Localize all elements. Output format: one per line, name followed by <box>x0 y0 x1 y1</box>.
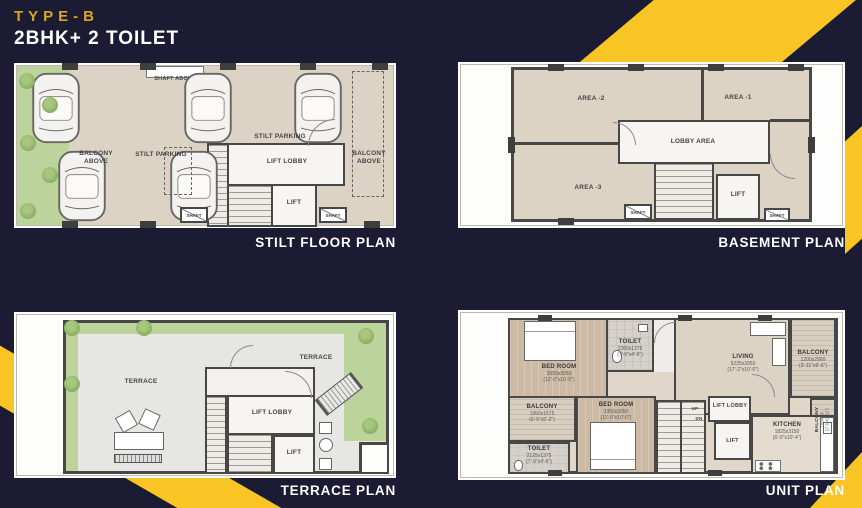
area-3-label: AREA -3 <box>550 184 626 192</box>
lift-lobby-label: LIFT LOBBY <box>232 409 312 417</box>
planter-top <box>66 323 352 334</box>
staircase <box>227 433 273 474</box>
bedroom-2-label: BED ROOM 3350x3050 (11'-0"x10'-0") <box>580 402 652 421</box>
column <box>372 63 388 70</box>
stool <box>319 422 332 434</box>
column <box>758 315 772 321</box>
lift-label: LIFT <box>714 438 751 445</box>
balcony-right-label: BALCONY 1200x2900 (3'-11"x9'-6") <box>792 350 834 369</box>
wall <box>513 142 621 145</box>
column <box>140 63 156 70</box>
lift-lobby-label: LIFT LOBBY <box>702 403 758 410</box>
terrace-notch <box>359 442 387 472</box>
stove <box>755 460 781 472</box>
column <box>62 221 78 228</box>
car-top-view-icon <box>180 71 236 145</box>
stool <box>319 458 332 470</box>
basement-plan-panel: SHAFT SHAFT AREA -2 AREA -1 AREA -3 LOBB… <box>458 62 845 228</box>
lift-label: LIFT <box>716 191 760 199</box>
staircase <box>227 184 273 227</box>
tree-icon <box>362 418 378 434</box>
staircase <box>656 400 682 474</box>
column <box>538 315 552 321</box>
table <box>114 432 164 450</box>
planter-left <box>66 323 78 471</box>
column <box>558 218 574 225</box>
column <box>220 63 236 70</box>
column <box>364 221 380 228</box>
wall <box>770 119 812 122</box>
column <box>808 137 815 153</box>
balcony-above-outline <box>352 71 384 197</box>
header: TYPE-B 2BHK+ 2 TOILET <box>14 8 179 50</box>
brochure-canvas: TYPE-B 2BHK+ 2 TOILET SHAFT ABOVE <box>0 0 862 508</box>
shaft-label: SHAFT <box>326 213 341 218</box>
shaft-box: SHAFT <box>624 204 652 220</box>
shaft-box: SHAFT <box>764 208 790 222</box>
shaft-box: SHAFT <box>319 207 347 223</box>
column <box>678 315 692 321</box>
column <box>628 64 644 71</box>
up-label: UP <box>688 406 702 412</box>
sofa <box>750 322 786 336</box>
basement-caption: BASEMENT PLAN <box>458 235 845 250</box>
lift-label: LIFT <box>273 449 315 457</box>
bed <box>590 422 636 470</box>
column <box>548 470 562 476</box>
shaft-label: SHAFT <box>631 210 646 215</box>
stilt-caption: STILT FLOOR PLAN <box>14 235 396 250</box>
type-label: TYPE-B <box>14 8 179 25</box>
tree-icon <box>20 135 36 151</box>
tree-icon <box>64 376 80 392</box>
shaft-label: SHAFT <box>187 213 202 218</box>
lobby-area-label: LOBBY AREA <box>658 138 728 146</box>
tree-icon <box>42 97 58 113</box>
stilt-parking-label: STILT PARKING <box>242 133 318 141</box>
column <box>140 221 156 228</box>
washbasin <box>638 324 648 332</box>
unit-plan-panel: BALCONY 750x900 (2'-6"x2'-11") BED ROOM … <box>458 310 845 480</box>
balcony-above-label: BALCONY ABOVE <box>348 150 390 166</box>
living-label: LIVING 5235x3050 (17'-2"x10'-0") <box>706 354 780 373</box>
kitchen-label: KITCHEN 1825x3150 (6'-0"x10'-4") <box>756 422 818 441</box>
column <box>300 63 316 70</box>
terrace-plan-panel: TERRACE TERRACE LIFT LOBBY LIFT <box>14 312 396 478</box>
tree-icon <box>64 320 80 336</box>
terrace-caption: TERRACE PLAN <box>14 483 396 498</box>
tree-icon <box>20 203 36 219</box>
unit-caption: UNIT PLAN <box>458 483 845 498</box>
round-table <box>319 438 333 452</box>
area-2-label: AREA -2 <box>553 95 629 103</box>
toilet-2-label: TOILET 2125x1375 (7'-0"x4'-6") <box>508 446 570 465</box>
terrace-label: TERRACE <box>284 354 348 362</box>
tree-icon <box>19 73 35 89</box>
tree-icon <box>358 328 374 344</box>
shaft-box: SHAFT <box>180 207 208 223</box>
column <box>708 64 724 71</box>
column <box>508 137 515 153</box>
bedroom-1-label: BED ROOM 3650x3050 (12'-0"x10'-0") <box>522 364 596 383</box>
tree-icon <box>42 167 58 183</box>
yellow-stripe-right-edge <box>845 126 862 254</box>
column <box>788 64 804 71</box>
column <box>62 63 78 70</box>
staircase <box>205 395 227 474</box>
lift-lobby-label: LIFT LOBBY <box>247 158 327 166</box>
deck-mat <box>114 454 162 463</box>
stilt-floor-plan-panel: SHAFT ABOVE SHAFT SHAFT STILT PARKING ST… <box>14 63 396 228</box>
area-1-label: AREA -1 <box>700 94 776 102</box>
shaft-label: SHAFT <box>770 213 785 218</box>
lift-label: LIFT <box>271 199 317 207</box>
column <box>548 64 564 71</box>
stilt-parking-label: STILT PARKING <box>126 151 196 159</box>
page-title: 2BHK+ 2 TOILET <box>14 28 179 50</box>
toilet-1-label: TOILET 2280x1375 (7'-6"x4'-6") <box>606 339 654 358</box>
dn-label: DN <box>692 416 706 422</box>
terrace-label: TERRACE <box>109 378 173 386</box>
column <box>708 470 722 476</box>
tree-icon <box>136 320 152 336</box>
balcony-above-label: BALCONY ABOVE <box>70 150 122 166</box>
balcony-left-label: BALCONY 1950x1575 (6'-5"x5'-2") <box>510 404 574 423</box>
staircase <box>654 162 714 220</box>
bed <box>524 321 576 361</box>
